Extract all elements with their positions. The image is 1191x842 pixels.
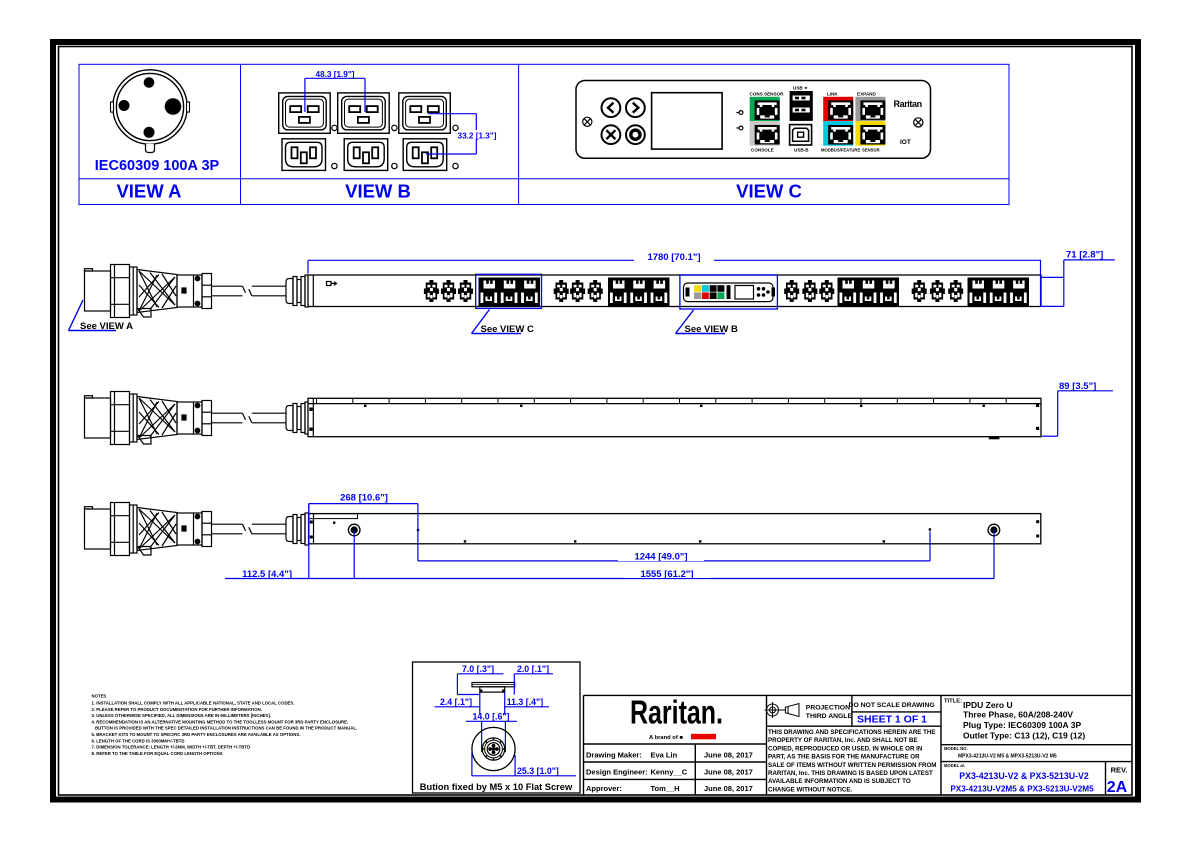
svg-text:IPDU Zero U: IPDU Zero U — [963, 700, 1013, 710]
svg-text:2.4 [.1"]: 2.4 [.1"] — [440, 697, 472, 707]
svg-text:VIEW C: VIEW C — [736, 181, 802, 202]
svg-text:1. INSTALLATION SHALL COMPLY W: 1. INSTALLATION SHALL COMPLY WITH ALL AP… — [92, 701, 295, 706]
svg-text:See VIEW B: See VIEW B — [685, 324, 738, 335]
svg-text:THIS DRAWING AND SPECIFICATION: THIS DRAWING AND SPECIFICATIONS HEREIN A… — [768, 729, 936, 736]
svg-text:NOTES: NOTES — [92, 694, 107, 699]
svg-text:COPIED, REPRODUCED OR USED, IN: COPIED, REPRODUCED OR USED, IN WHOLE OR … — [768, 745, 923, 752]
svg-text:Eva Lin: Eva Lin — [651, 750, 678, 759]
svg-text:Approver:: Approver: — [586, 784, 622, 793]
svg-text:Plug Type: IEC60309 100A 3P: Plug Type: IEC60309 100A 3P — [963, 720, 1081, 730]
svg-text:33.2 [1.3"]: 33.2 [1.3"] — [458, 132, 497, 141]
svg-text:SHEET 1 OF 1: SHEET 1 OF 1 — [857, 714, 927, 726]
svg-text:11.3 [.4"]: 11.3 [.4"] — [507, 697, 544, 707]
svg-text:June 08, 2017: June 08, 2017 — [704, 750, 753, 759]
svg-text:2. PLEASE REFER TO PRODUCT DOC: 2. PLEASE REFER TO PRODUCT DOCUMENTATION… — [92, 707, 262, 712]
svg-text:1555 [61.2"]: 1555 [61.2"] — [640, 569, 693, 580]
svg-text:2A: 2A — [1107, 779, 1128, 796]
svg-text:USB-B: USB-B — [794, 148, 809, 153]
svg-text:7. DIMENSION TOLERANCE: LENGTH: 7. DIMENSION TOLERANCE: LENGTH +/-2MM, W… — [92, 745, 251, 750]
svg-text:PROPERTY OF RARITAN, Inc. AND: PROPERTY OF RARITAN, Inc. AND SHALL NOT … — [768, 737, 918, 744]
svg-text:Drawing Maker:: Drawing Maker: — [586, 750, 642, 759]
svg-text:71 [2.8"]: 71 [2.8"] — [1066, 250, 1103, 261]
svg-text:4. RECOMMENDATION IS AN ALTERN: 4. RECOMMENDATION IS AN ALTERNATIVE MOUN… — [92, 719, 349, 724]
svg-text:7.0 [.3"]: 7.0 [.3"] — [462, 664, 494, 674]
svg-text:Design Engineer:: Design Engineer: — [586, 768, 648, 777]
svg-text:PX3-4213U-V2M5 & PX3-5213U-V2M: PX3-4213U-V2M5 & PX3-5213U-V2M5 — [950, 785, 1094, 794]
svg-text:See VIEW A: See VIEW A — [80, 321, 133, 332]
svg-text:June 08, 2017: June 08, 2017 — [704, 784, 753, 793]
svg-text:MODEL at.: MODEL at. — [944, 763, 965, 768]
svg-text:MPX3-4213U-V2 M5 & MPX3-5213U-: MPX3-4213U-V2 M5 & MPX3-5213U-V2 M5 — [958, 754, 1057, 760]
svg-text:1780 [70.1"]: 1780 [70.1"] — [647, 252, 700, 263]
svg-text:5. BRACKET KITS TO MOUNT TO SP: 5. BRACKET KITS TO MOUNT TO SPECIFIC 3RD… — [92, 732, 301, 737]
svg-text:VIEW B: VIEW B — [345, 181, 411, 202]
svg-text:Raritan: Raritan — [894, 99, 922, 109]
svg-text:BUTTON IS PROVIDED WITH THE SP: BUTTON IS PROVIDED WITH THE SPEC DETAILE… — [95, 726, 357, 731]
svg-text:USB ⚭: USB ⚭ — [793, 86, 808, 91]
svg-text:6. LENGTH OF THE CORD IS 3000M: 6. LENGTH OF THE CORD IS 3000MM+/-TBTD — [92, 738, 185, 743]
svg-text:PROJECTION: PROJECTION — [806, 705, 850, 712]
svg-text:VIEW A: VIEW A — [116, 181, 181, 202]
svg-text:Tom__H: Tom__H — [651, 784, 680, 793]
svg-text:Raritan.: Raritan. — [630, 694, 723, 731]
svg-text:2.0 [.1"]: 2.0 [.1"] — [517, 664, 549, 674]
svg-text:PX3-4213U-V2 & PX3-5213U-V2: PX3-4213U-V2 & PX3-5213U-V2 — [959, 771, 1089, 781]
svg-text:See VIEW C: See VIEW C — [481, 324, 534, 335]
svg-text:112.5 [4.4"]: 112.5 [4.4"] — [242, 569, 292, 580]
svg-text:Outlet Type: C13 (12), C19 (12: Outlet Type: C13 (12), C19 (12) — [963, 731, 1085, 741]
svg-text:8. REFER TO THE TABLE FOR EQUA: 8. REFER TO THE TABLE FOR EQUAL CORD LEN… — [92, 751, 223, 756]
svg-text:PART, AS THE BASIS FOR THE MAN: PART, AS THE BASIS FOR THE MANUFACTURE O… — [768, 754, 920, 761]
svg-text:MODBUS/FEATURE: MODBUS/FEATURE — [821, 148, 860, 153]
svg-text:48.3 [1.9"]: 48.3 [1.9"] — [316, 70, 355, 79]
svg-text:DO NOT SCALE DRAWING: DO NOT SCALE DRAWING — [849, 702, 935, 709]
svg-text:SALE OF ITEMS WITHOUT WRITTEN: SALE OF ITEMS WITHOUT WRITTEN PERMISSION… — [768, 762, 936, 769]
svg-text:Three Phase, 60A/208-240V: Three Phase, 60A/208-240V — [963, 710, 1073, 720]
svg-text:EXPAND: EXPAND — [857, 92, 876, 97]
svg-text:25.3 [1.0"]: 25.3 [1.0"] — [517, 766, 559, 776]
svg-text:3. UNLESS OTHERWISE SPECIFIED,: 3. UNLESS OTHERWISE SPECIFIED, ALL DIMEN… — [92, 713, 272, 718]
svg-text:Kenny__C: Kenny__C — [651, 768, 688, 777]
svg-text:IOT: IOT — [900, 139, 911, 146]
svg-text:A brand of ■: A brand of ■ — [649, 735, 683, 741]
svg-text:CONSOLE: CONSOLE — [751, 148, 774, 153]
svg-text:IEC60309 100A 3P: IEC60309 100A 3P — [95, 158, 220, 174]
svg-text:Bution fixed by M5 x 10 Flat S: Bution fixed by M5 x 10 Flat Screw — [420, 782, 573, 792]
svg-text:LINK: LINK — [827, 92, 838, 97]
svg-text:REV.: REV. — [1111, 766, 1128, 775]
svg-text:14.0 [.6"]: 14.0 [.6"] — [473, 712, 510, 722]
svg-text:AVAILABLE INFORMATION AND IS S: AVAILABLE INFORMATION AND IS SUBJECT TO — [768, 778, 911, 785]
svg-text:CONS SENSOR: CONS SENSOR — [750, 92, 785, 97]
svg-text:RARITAN, Inc. THIS DRAWING IS: RARITAN, Inc. THIS DRAWING IS BASED UPON… — [768, 770, 933, 777]
svg-text:CHANGE WITHOUT NOTICE.: CHANGE WITHOUT NOTICE. — [768, 786, 852, 793]
svg-text:89 [3.5"]: 89 [3.5"] — [1059, 381, 1096, 392]
svg-text:MODEL NO.: MODEL NO. — [944, 746, 968, 751]
svg-text:1244 [49.0"]: 1244 [49.0"] — [634, 552, 687, 563]
svg-text:SENSOR: SENSOR — [862, 148, 880, 153]
svg-text:TITLE:: TITLE: — [944, 699, 962, 705]
svg-text:June 08, 2017: June 08, 2017 — [704, 768, 753, 777]
svg-text:268 [10.6"]: 268 [10.6"] — [340, 493, 388, 504]
svg-text:THIRD ANGLE: THIRD ANGLE — [806, 713, 853, 720]
